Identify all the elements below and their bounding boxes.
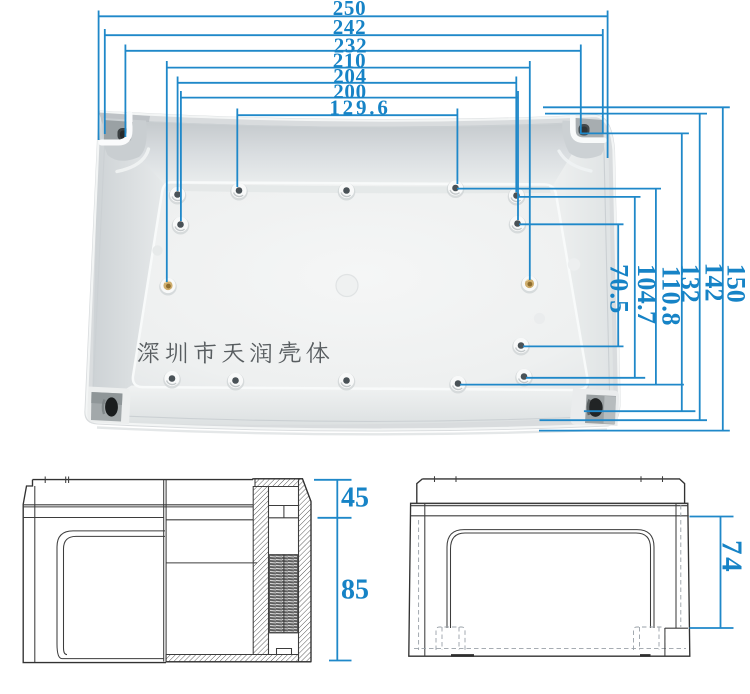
svg-text:129.6: 129.6 bbox=[329, 95, 390, 119]
svg-text:74: 74 bbox=[716, 540, 748, 574]
svg-text:85: 85 bbox=[341, 575, 369, 606]
svg-text:45: 45 bbox=[341, 483, 369, 514]
svg-text:70.5: 70.5 bbox=[605, 264, 634, 314]
svg-text:104.7: 104.7 bbox=[632, 264, 661, 325]
